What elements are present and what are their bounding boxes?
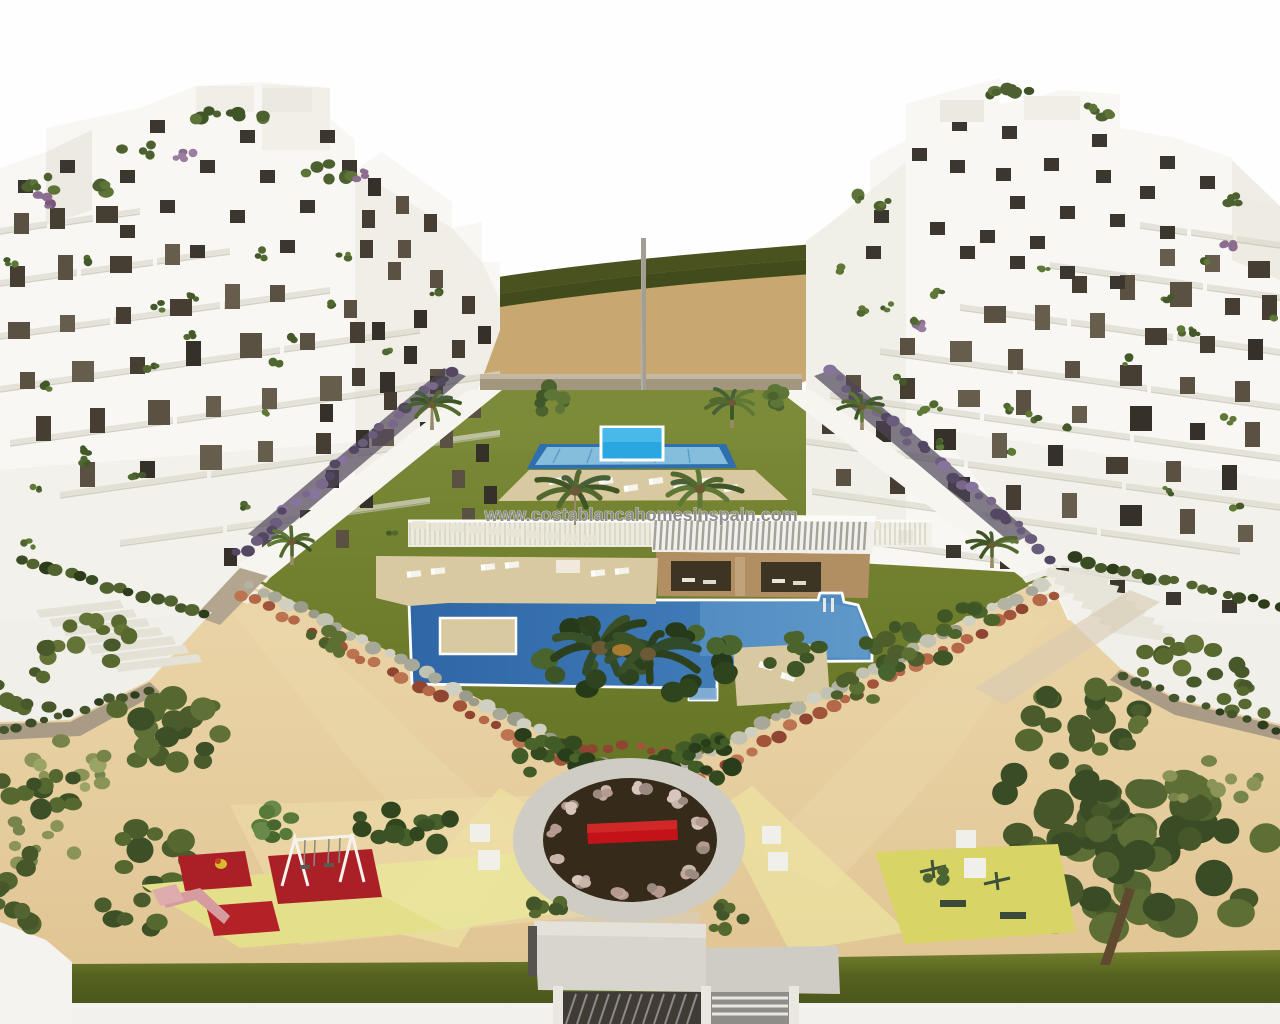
- svg-text:www.costablancahomesinspain.co: www.costablancahomesinspain.com: [483, 505, 797, 525]
